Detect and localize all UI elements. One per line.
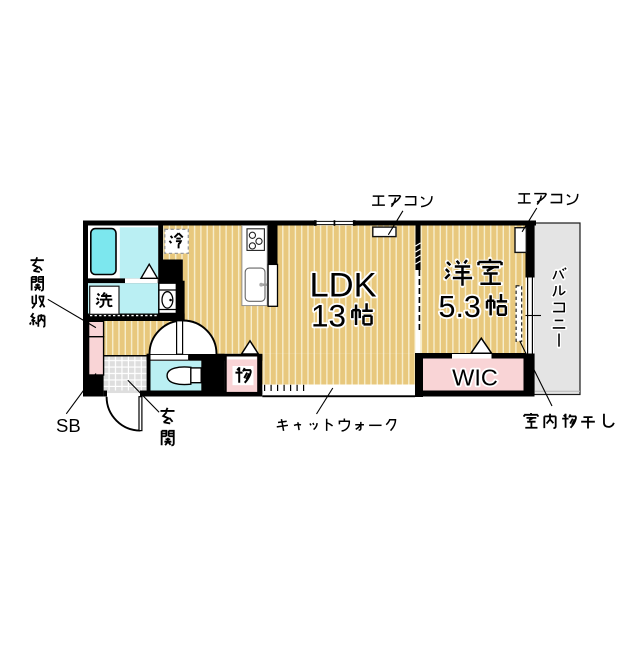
- svg-text:13: 13: [311, 298, 346, 334]
- svg-text:WIC: WIC: [452, 364, 498, 390]
- svg-text:SB: SB: [56, 415, 81, 436]
- svg-text:5.3: 5.3: [439, 290, 481, 324]
